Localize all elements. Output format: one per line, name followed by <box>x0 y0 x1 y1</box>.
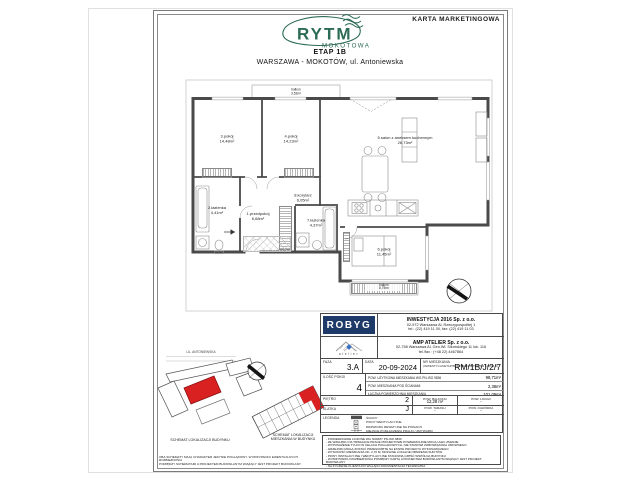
faza-label: FAZA <box>323 360 332 364</box>
balcony-bottom-label: balkon 8,75m² <box>366 284 402 291</box>
unit-plan-schematic <box>252 386 323 438</box>
area-value: 98,71m² <box>486 375 501 380</box>
loggia-cell: POW. LOGGII - <box>458 396 504 406</box>
klatka-value: J <box>406 406 410 413</box>
street-label: UL. ANTONIEWSKA <box>168 350 234 354</box>
building-highlight <box>184 376 221 404</box>
outer-walls <box>192 97 490 283</box>
data-value: 20-09-2024 <box>379 363 417 372</box>
ogrodek-value: - <box>458 408 504 413</box>
site-building <box>166 360 236 382</box>
room-area: 11,45m² <box>377 252 392 257</box>
legend-item: MIEJSCE PODŁĄCZENIA PRALKI / ZMYWARKI <box>351 429 433 433</box>
marketing-card-page: KARTA MARKETINGOWA RYTM MOKOTOWA <box>0 0 640 480</box>
location-label: WARSZAWA - MOKOTÓW, ul. Antoniewska <box>153 59 507 66</box>
studio-phone: tel./fax : (+48 22) 4467864 <box>419 350 463 355</box>
klatka-cell: KLATKA J <box>321 406 413 416</box>
pietro-cell: PIĘTRO 2 <box>321 396 413 406</box>
balkon-cell: POW. BALKONU 12,28 m² <box>413 396 458 406</box>
site-plan-schematic <box>158 357 266 425</box>
faza-value: 3.A <box>347 363 359 372</box>
room-area: 14,48m² <box>220 139 235 144</box>
compass-icon <box>447 279 472 303</box>
rooms-count-value: 4 <box>356 383 362 394</box>
developer-logo-cell: ROBYG <box>321 314 378 337</box>
schematic-disclaimer: OBA SCHEMATY MAJĄ CHARAKTER JEDYNIE POGL… <box>159 456 319 468</box>
loggia-value: - <box>458 399 504 404</box>
floor-plan: 3.pokój 14,48m² 4.pokój 14,23m² 5.salon … <box>186 80 492 311</box>
legend-label: LEGENDA <box>323 416 339 420</box>
atelier-logo-text: atelier <box>339 352 359 356</box>
area-label: POW. UŻYTKOWA MIESZKANIA WG PN-ISO 9836 <box>368 376 441 380</box>
area-value: 2,38m² <box>488 384 501 389</box>
balcony-top-area: 3,53m² <box>291 91 301 95</box>
rooms-count-cell: ILOŚĆ POKOI 4 <box>321 374 366 396</box>
rooms-count-label: ILOŚĆ POKOI <box>323 375 345 379</box>
site-building <box>158 381 188 417</box>
room-area: 14,23m² <box>284 139 299 144</box>
balcony-area: 8,75m² <box>366 287 402 291</box>
entrance-arrow-icon <box>224 229 235 234</box>
studio-logo-cell: atelier <box>321 337 378 359</box>
connection-point-symbol-icon <box>351 428 364 433</box>
area-row: POW. UŻYTKOWA MIESZKANIA WG PN-ISO 9836 … <box>366 374 504 382</box>
compass-small-icon <box>247 362 266 380</box>
pietro-value: 2 <box>405 397 409 404</box>
pietro-label: PIĘTRO <box>323 397 336 401</box>
data-label: DATA <box>365 360 374 364</box>
room-area: 6,68m² <box>252 216 265 221</box>
areas-cell: POW. UŻYTKOWA MIESZKANIA WG PN-ISO 9836 … <box>366 374 504 396</box>
data-cell: DATA 20-09-2024 <box>363 359 421 374</box>
developer-info-cell: INWESTYCJA 2016 Sp. z o.o. 02-972 Warsza… <box>378 314 504 337</box>
ogrodek-cell: POW. OGRÓDKA - <box>458 406 504 416</box>
windows <box>212 97 489 282</box>
unit-caption-line: MIESZKANIA W BUDYNKU <box>256 437 330 441</box>
wardrobe-hatch <box>202 168 232 178</box>
nr-value: RM/1B/J/2/7 <box>454 362 501 372</box>
logo-brand-text: RYTM <box>297 25 353 44</box>
nr-cell: NR MIESZKANIA (INWESTYCJA/ETAP/BUDYNEK/P… <box>421 359 504 374</box>
brand-logo: RYTM MOKOTOWA <box>283 15 370 50</box>
legend-item-label: MIEJSCE PODŁĄCZENIA PRALKI / ZMYWARKI <box>366 429 433 433</box>
taras-cell: POW. TARASU - <box>413 406 458 416</box>
wardrobe-hatch <box>284 168 314 178</box>
room-area: 4,41m² <box>211 210 224 215</box>
radiator-hatch <box>343 232 350 262</box>
balkon-value: 12,28 m² <box>413 399 457 404</box>
klatka-label: KLATKA <box>323 407 336 411</box>
site-building <box>196 399 230 424</box>
stage-label: ETAP 1B <box>153 49 507 56</box>
notes-box: POWIERZCHNIE LICZONE WG NORMY PN-ISO 983… <box>322 435 501 465</box>
studio-info-cell: AMP ATELIER Sp. z o.o. 02-758 Warszawa A… <box>378 337 504 359</box>
taras-value: - <box>413 408 457 413</box>
area-label: POW. MIESZKANIA POD ŚCIANAMI <box>368 384 420 388</box>
room-area: 4,37m² <box>310 223 323 228</box>
unit-schematic-caption: SCHEMAT LOKALIZACJI MIESZKANIA W BUDYNKU <box>256 433 330 441</box>
area-row: POW. MIESZKANIA POD ŚCIANAMI 2,38m² <box>366 382 504 390</box>
developer-phone: tel.: (22) 419 11 00, fax: (22) 419 11 0… <box>408 327 473 332</box>
legend-cell: LEGENDA ŚCIANY PIONY WENTYLACYJNE DRZWIC… <box>321 415 504 433</box>
schematic-disclaimer-line: POMIĘDZY SCHEMATAMI A PROJEKTEM BUDOWLAN… <box>159 463 319 467</box>
room-area: 6,05m² <box>297 198 310 203</box>
robyg-logo: ROBYG <box>323 316 375 334</box>
room-area: 26,73m² <box>398 140 413 145</box>
hall-tiles <box>243 236 291 252</box>
note-line: NA ŻYCZENIE KLIENTA DO WGLĄDU DOKUMENTAC… <box>326 465 497 468</box>
info-table: ROBYG INWESTYCJA 2016 Sp. z o.o. 02-972 … <box>320 313 503 433</box>
building-schematic-caption: SCHEMAT LOKALIZACJI BUDYNKU <box>150 438 250 442</box>
atelier-logo-icon <box>332 339 366 352</box>
faza-cell: FAZA 3.A <box>321 359 363 374</box>
